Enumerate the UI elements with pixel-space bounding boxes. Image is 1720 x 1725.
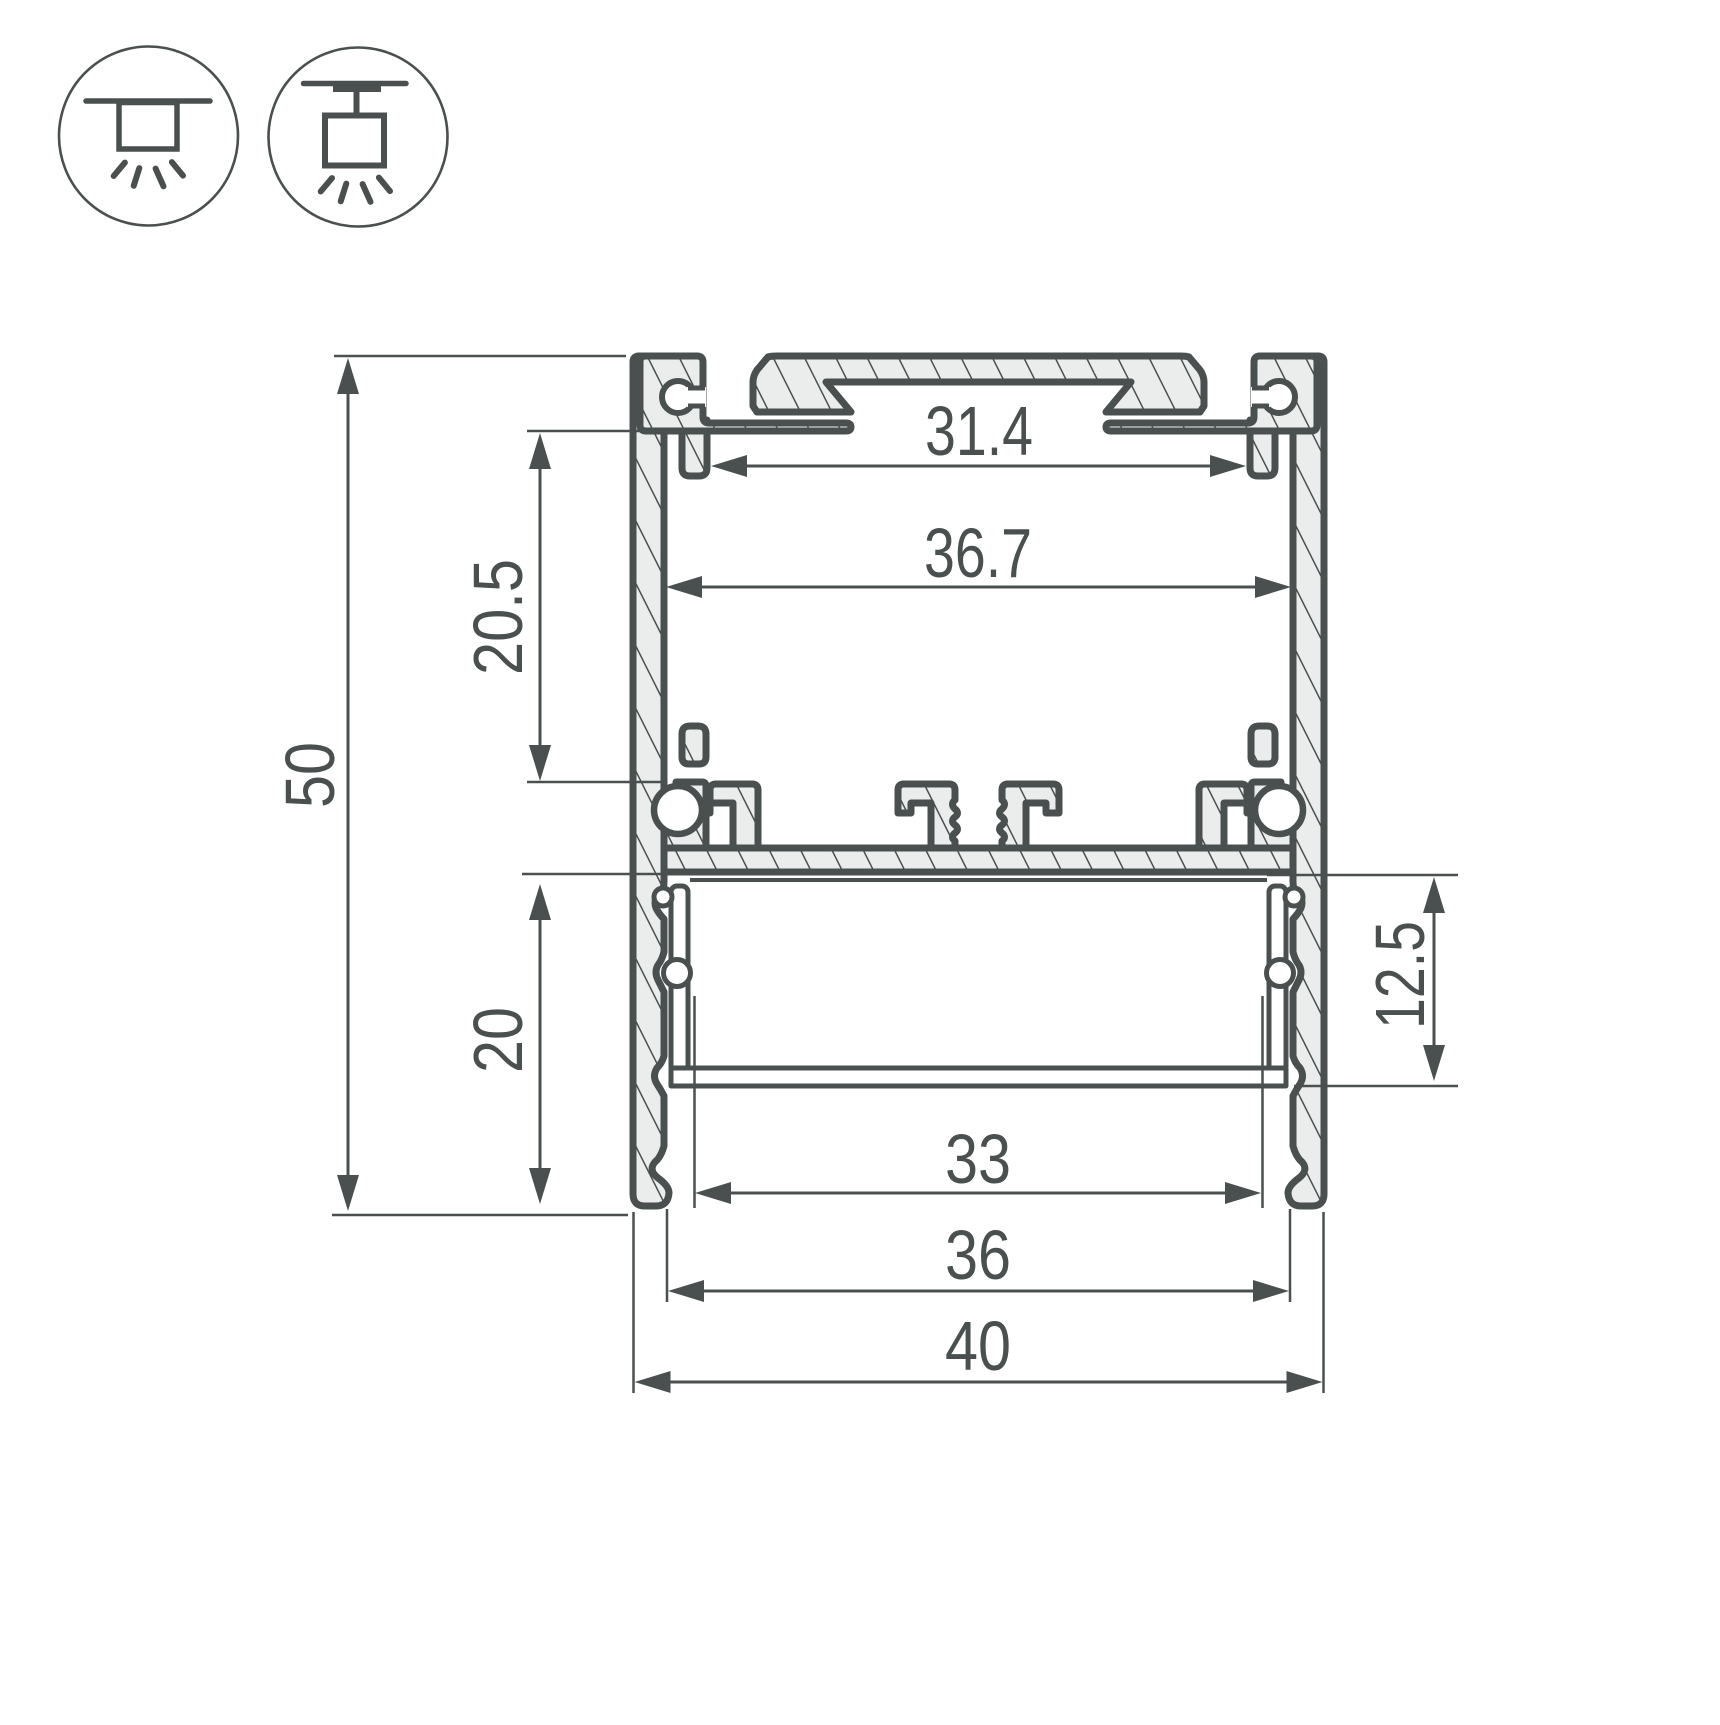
svg-text:36.7: 36.7	[924, 514, 1032, 592]
svg-text:36: 36	[945, 1216, 1011, 1294]
svg-text:50: 50	[271, 742, 349, 808]
svg-text:12.5: 12.5	[1361, 921, 1439, 1029]
svg-text:40: 40	[945, 1307, 1011, 1385]
svg-text:20.5: 20.5	[459, 559, 537, 675]
svg-text:31.4: 31.4	[925, 392, 1033, 470]
svg-text:20: 20	[459, 1007, 537, 1073]
svg-text:33: 33	[945, 1120, 1011, 1198]
